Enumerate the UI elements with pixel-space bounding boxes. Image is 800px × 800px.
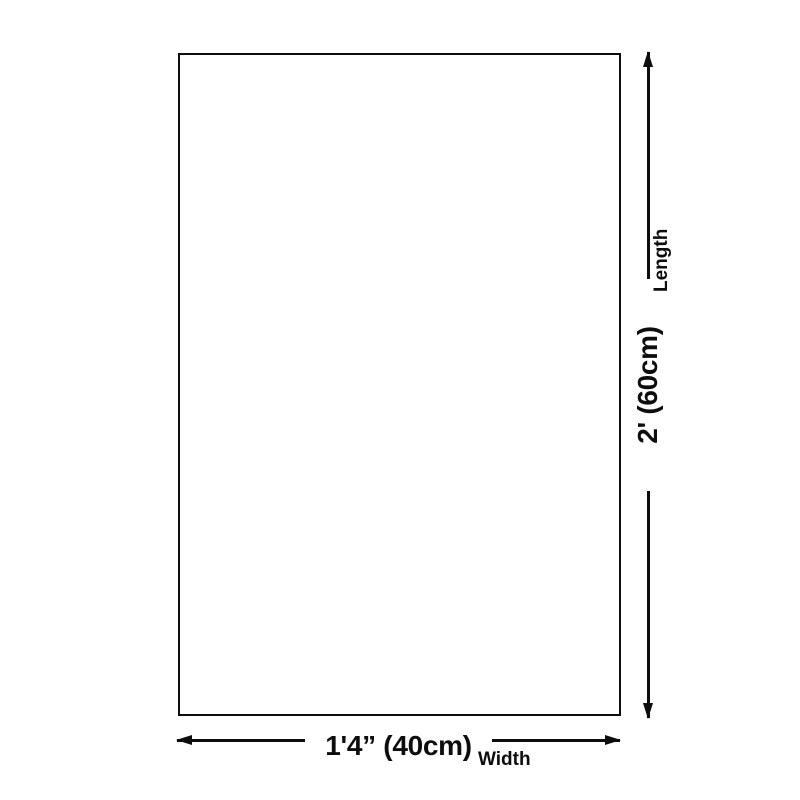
arrow-down-icon (647, 491, 650, 718)
arrow-right-icon (492, 739, 620, 742)
width-label: Width (478, 749, 531, 771)
length-value: 2' (60cm) (632, 326, 664, 444)
dimension-diagram: 2' (60cm) Length 1'4” (40cm) Width (0, 0, 800, 800)
length-label: Length (651, 229, 673, 292)
width-dimension-arrow: 1'4” (40cm) Width (177, 727, 620, 775)
product-outline-rectangle (178, 53, 621, 716)
arrow-left-icon (177, 739, 305, 742)
arrow-up-icon (647, 52, 650, 279)
width-value: 1'4” (40cm) (325, 730, 472, 762)
length-dimension-arrow: 2' (60cm) Length (635, 52, 683, 718)
